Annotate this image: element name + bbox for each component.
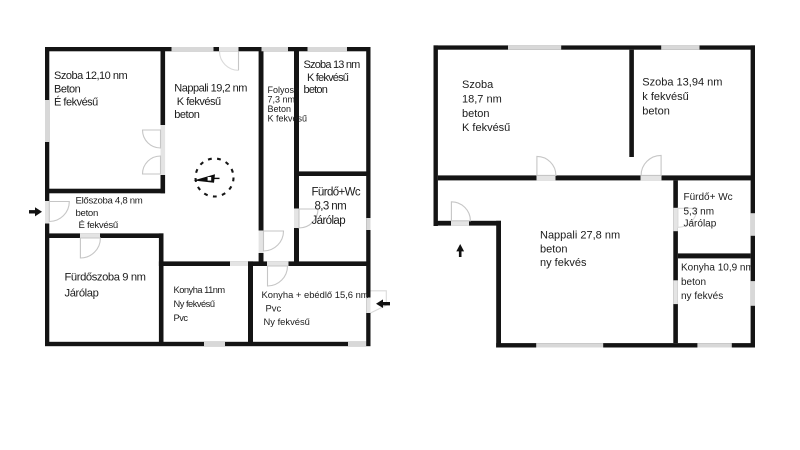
svg-text:beton: beton	[462, 108, 490, 120]
svg-text:Pvc: Pvc	[174, 313, 189, 323]
svg-text:beton: beton	[174, 109, 199, 121]
svg-text:K fekvésű: K fekvésű	[268, 113, 308, 123]
svg-text:Fürdőszoba 9 nm: Fürdőszoba 9 nm	[65, 272, 146, 284]
svg-text:Járólap: Járólap	[65, 288, 99, 300]
svg-text:Szoba 12,10 nm: Szoba 12,10 nm	[54, 70, 127, 82]
svg-text:Ny fekvésű: Ny fekvésű	[174, 299, 215, 309]
svg-text:Nappali 19,2 nm: Nappali 19,2 nm	[174, 83, 247, 95]
svg-text:Járólap: Járólap	[684, 219, 717, 230]
svg-text:É fekvésű: É fekvésű	[79, 220, 118, 231]
svg-text:beton: beton	[304, 84, 328, 96]
svg-text:K fekvésű: K fekvésű	[177, 96, 221, 108]
svg-text:Konyha 11nm: Konyha 11nm	[174, 285, 226, 295]
svg-text:K fekvésű: K fekvésű	[307, 72, 349, 84]
svg-text:18,7 nm: 18,7 nm	[462, 94, 502, 106]
svg-text:beton: beton	[642, 106, 670, 118]
svg-text:Pvc: Pvc	[266, 302, 282, 313]
svg-text:5,3 nm: 5,3 nm	[684, 206, 715, 217]
svg-text:Fürdő+Wc: Fürdő+Wc	[312, 186, 361, 198]
svg-text:Beton: Beton	[54, 83, 81, 95]
svg-text:K fekvésű: K fekvésű	[462, 122, 510, 134]
svg-text:beton: beton	[540, 243, 568, 255]
svg-text:beton: beton	[76, 208, 99, 219]
svg-text:Ny fekvésű: Ny fekvésű	[264, 316, 310, 327]
svg-text:Szoba 13 nm: Szoba 13 nm	[304, 59, 361, 71]
svg-text:Szoba: Szoba	[462, 79, 494, 91]
svg-text:Szoba 13,94 nm: Szoba 13,94 nm	[642, 77, 722, 89]
svg-text:ny fekvés: ny fekvés	[681, 291, 723, 302]
svg-text:Járólap: Járólap	[312, 215, 346, 227]
svg-text:Konyha + ebédlő 15,6 nm: Konyha + ebédlő 15,6 nm	[262, 289, 369, 300]
svg-text:Konyha 10,9 nm: Konyha 10,9 nm	[681, 263, 754, 274]
svg-text:Előszoba 4,8 nm: Előszoba 4,8 nm	[76, 196, 143, 207]
svg-text:Nappali 27,8 nm: Nappali 27,8 nm	[540, 230, 620, 242]
svg-text:ny fekvés: ny fekvés	[540, 257, 587, 269]
svg-text:k fekvésű: k fekvésű	[642, 91, 688, 103]
svg-text:Fürdő+ Wc: Fürdő+ Wc	[684, 192, 733, 203]
svg-text:8,3 nm: 8,3 nm	[315, 200, 347, 212]
svg-text:beton: beton	[681, 277, 706, 288]
svg-text:É fekvésű: É fekvésű	[54, 96, 98, 109]
